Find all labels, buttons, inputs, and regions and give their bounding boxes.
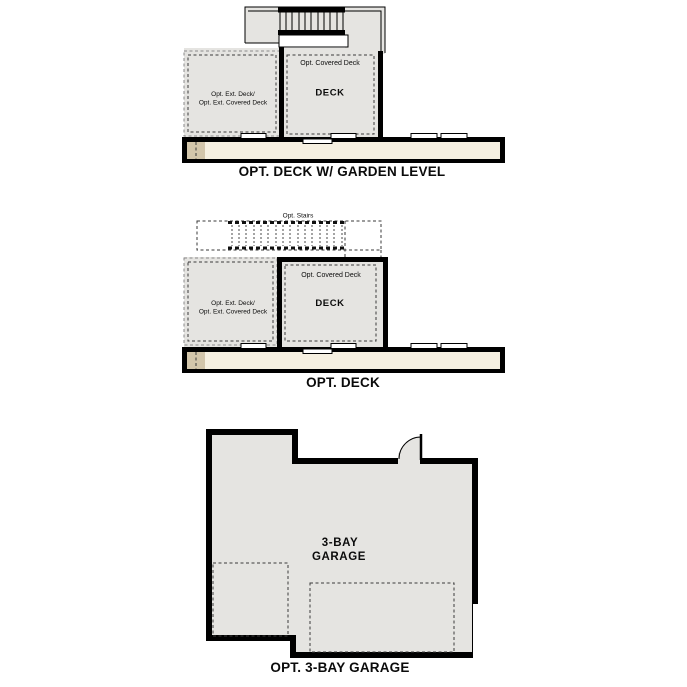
window (441, 344, 467, 349)
plan-deck-garden-level: Opt. Ext. Deck/ Opt. Ext. Covered Deck O… (182, 7, 505, 179)
window (331, 134, 356, 139)
plan-caption: OPT. DECK W/ GARDEN LEVEL (239, 164, 446, 179)
opt-ext-deck-label-line1: Opt. Ext. Deck/ (211, 300, 255, 307)
opt-stairs-dashed (197, 221, 381, 258)
opt-covered-deck-label: Opt. Covered Deck (301, 272, 361, 279)
deck-left-wall (279, 47, 284, 138)
opt-ext-deck-label-line2: Opt. Ext. Covered Deck (199, 309, 268, 316)
door-sill (303, 139, 332, 144)
plan-caption: OPT. DECK (306, 375, 380, 390)
deck-left-wall (277, 257, 282, 347)
garage-label-line2: GARAGE (312, 551, 366, 563)
window (241, 344, 266, 349)
opt-ext-deck-label-line2: Opt. Ext. Covered Deck (199, 100, 268, 107)
stair-landing-dashed (345, 221, 381, 258)
window (411, 134, 437, 139)
plan-garage: 3-BAY GARAGE OPT. 3-BAY GARAGE (206, 429, 478, 675)
entry-door (398, 434, 421, 465)
floor-plan-sheet: Opt. Ext. Deck/ Opt. Ext. Covered Deck O… (0, 0, 687, 687)
window (241, 134, 266, 139)
stair-treads-dashed (232, 225, 342, 246)
stairs (245, 7, 385, 54)
deck-top-wall (277, 257, 388, 262)
opt-ext-deck-label-line1: Opt. Ext. Deck/ (211, 91, 255, 98)
window (411, 344, 437, 349)
house-wall-band (182, 134, 505, 164)
plan-caption: OPT. 3-BAY GARAGE (270, 660, 409, 675)
window (441, 134, 467, 139)
stair-stringer (279, 35, 348, 47)
deck-label: DECK (315, 298, 344, 309)
plan-opt-deck: Opt. Stairs Opt. Ext. Deck/ Opt. Ext. Co… (182, 213, 505, 391)
stair-bottom-rail (278, 30, 345, 35)
band-interior (187, 142, 500, 159)
floor-plans-canvas: Opt. Ext. Deck/ Opt. Ext. Covered Deck O… (0, 0, 687, 687)
stair-right-landing-fill (345, 7, 385, 54)
deck-right-wall (383, 257, 388, 347)
stair-top-rail (278, 8, 345, 13)
deck-label: DECK (315, 88, 344, 99)
stairs-outline-dashed (197, 221, 381, 250)
band-interior (187, 352, 500, 369)
deck-right-wall (378, 51, 383, 138)
door-sill (303, 349, 332, 354)
house-wall-band (182, 344, 505, 374)
window (331, 344, 356, 349)
opt-covered-deck-label: Opt. Covered Deck (300, 60, 360, 67)
opt-stairs-label: Opt. Stairs (283, 213, 314, 220)
garage-label-line1: 3-BAY (322, 537, 358, 549)
